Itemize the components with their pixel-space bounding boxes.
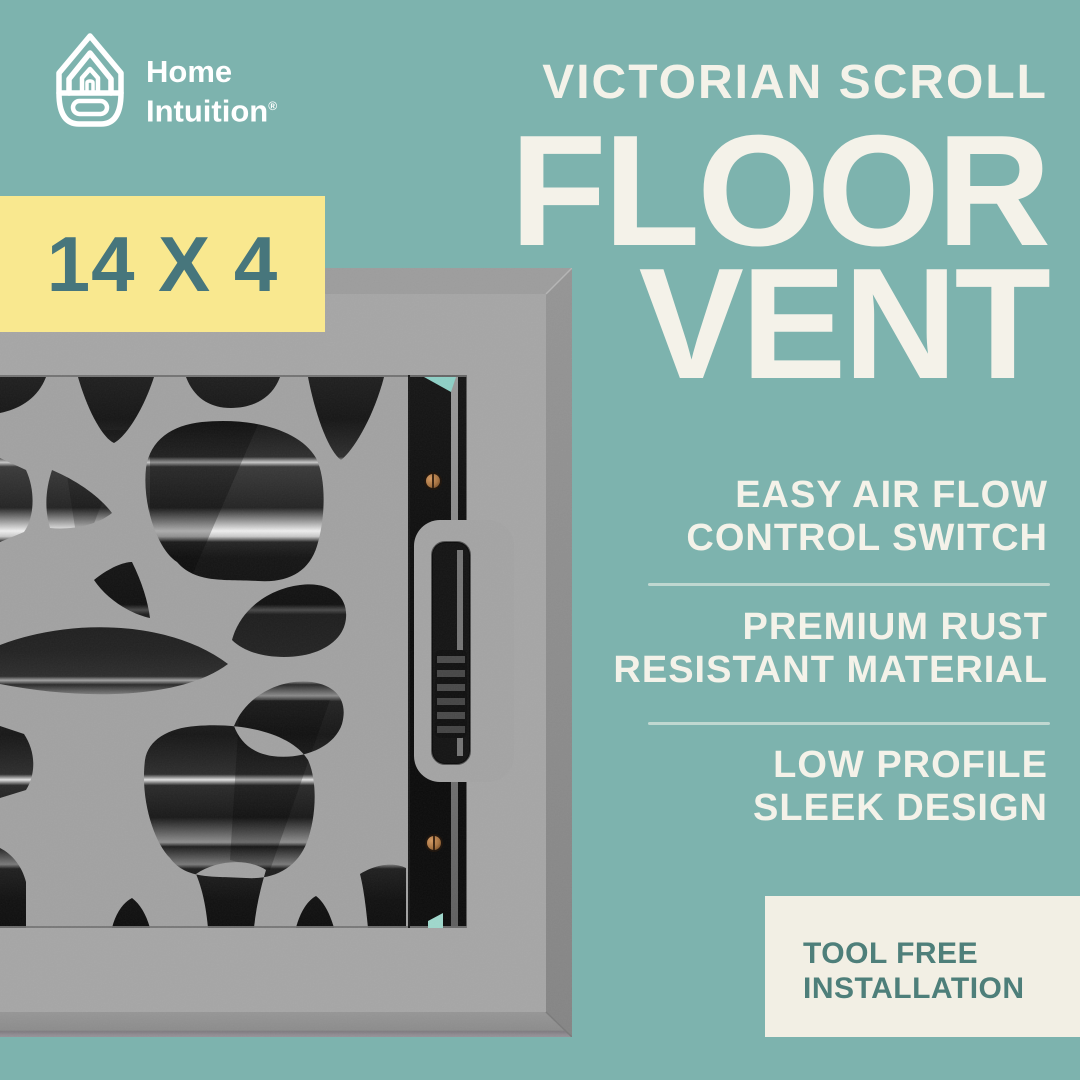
headline: VICTORIAN SCROLL FLOOR VENT (510, 58, 1048, 398)
brand-logo: Home Intuition® (56, 31, 277, 128)
install-badge-line2: INSTALLATION (803, 971, 1080, 1006)
feature-low-profile: LOW PROFILE SLEEK DESIGN (753, 744, 1048, 830)
brand-name: Home Intuition® (146, 55, 277, 128)
feature-divider-2 (648, 722, 1050, 725)
brand-line1: Home (146, 55, 277, 89)
brand-line2: Intuition® (146, 89, 277, 128)
feature-air-flow: EASY AIR FLOW CONTROL SWITCH (686, 474, 1048, 560)
size-badge-label: 14 X 4 (47, 219, 279, 310)
install-badge: TOOL FREE INSTALLATION (765, 896, 1080, 1037)
size-badge: 14 X 4 (0, 196, 325, 332)
ad-canvas: Home Intuition® VICTORIAN SCROLL FLOOR V… (0, 0, 1080, 1080)
install-badge-line1: TOOL FREE (803, 936, 1080, 971)
trademark-symbol: ® (268, 99, 277, 113)
feature-rust-resistant: PREMIUM RUST RESISTANT MATERIAL (613, 606, 1048, 692)
feature-divider-1 (648, 583, 1050, 586)
home-intuition-logo-icon (56, 31, 124, 127)
headline-kicker: VICTORIAN SCROLL (510, 58, 1048, 108)
product-image-floor-vent (0, 268, 572, 1037)
